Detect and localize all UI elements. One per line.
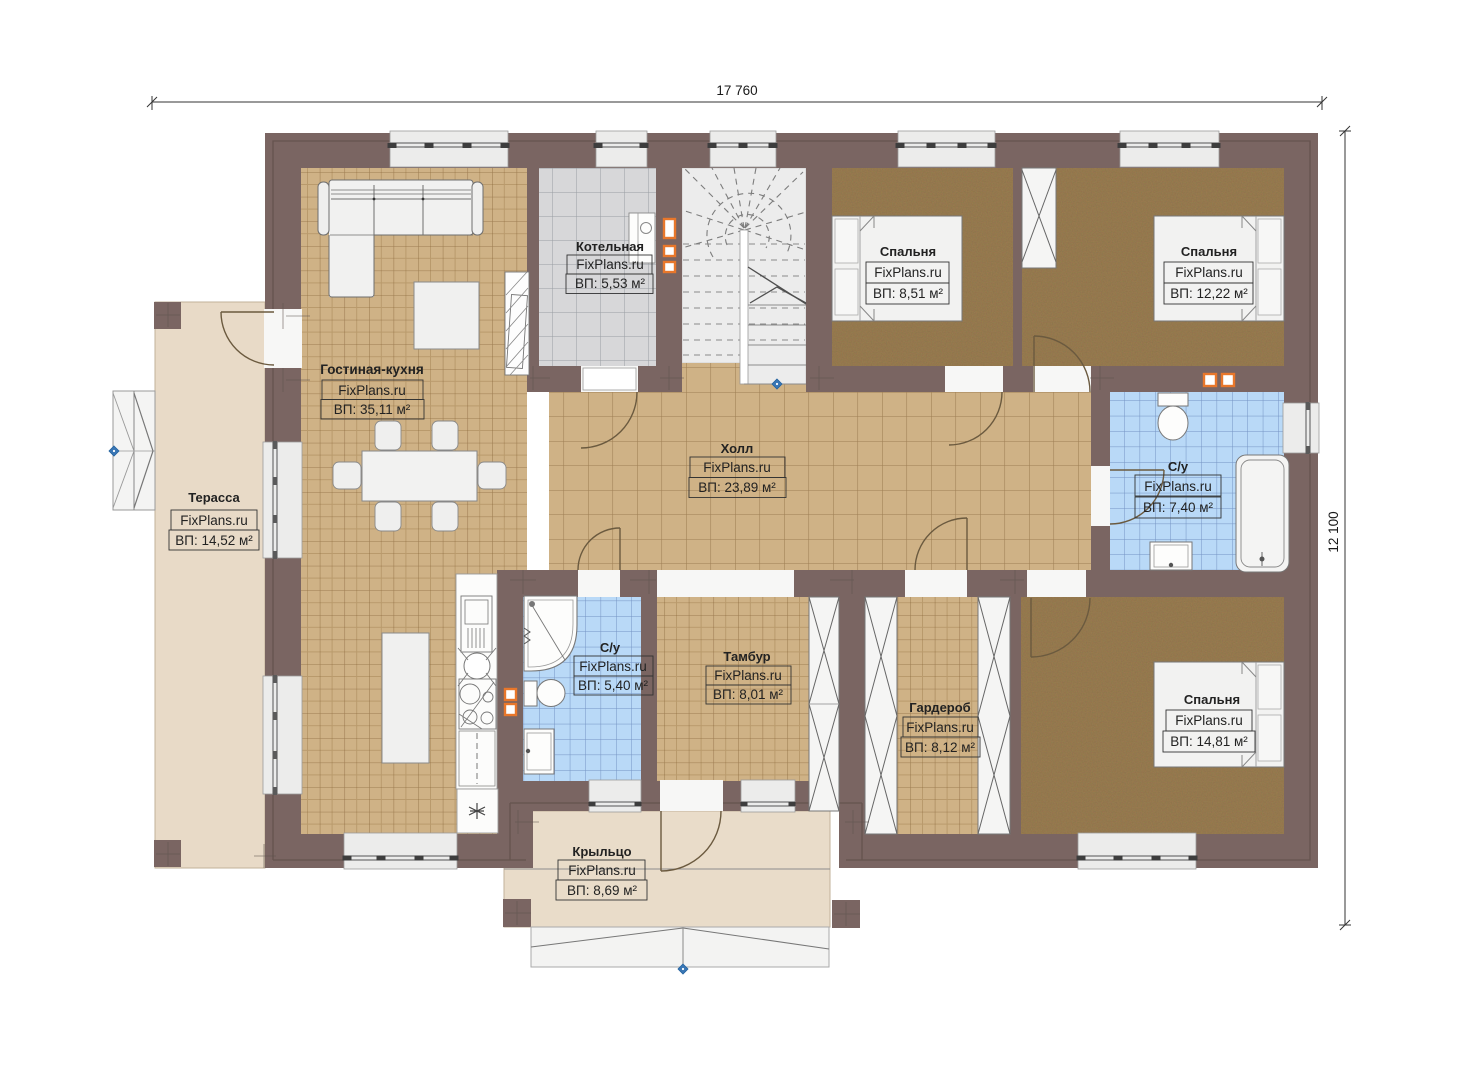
svg-text:Спальня: Спальня — [1184, 692, 1240, 707]
svg-text:ВП: 14,81 м²: ВП: 14,81 м² — [1170, 734, 1248, 749]
svg-text:С/у: С/у — [1168, 459, 1189, 474]
svg-text:ВП: 5,40 м²: ВП: 5,40 м² — [578, 678, 649, 693]
svg-text:FixPlans.ru: FixPlans.ru — [568, 863, 636, 878]
svg-text:ВП: 8,12 м²: ВП: 8,12 м² — [905, 740, 976, 755]
svg-text:FixPlans.ru: FixPlans.ru — [1175, 265, 1243, 280]
svg-text:Тамбур: Тамбур — [723, 649, 770, 664]
svg-text:FixPlans.ru: FixPlans.ru — [703, 460, 771, 475]
svg-text:FixPlans.ru: FixPlans.ru — [714, 668, 782, 683]
svg-text:Холл: Холл — [721, 441, 754, 456]
svg-text:Спальня: Спальня — [1181, 244, 1237, 259]
svg-text:Гостиная-кухня: Гостиная-кухня — [320, 362, 423, 377]
svg-text:ВП: 35,11 м²: ВП: 35,11 м² — [334, 402, 411, 417]
svg-text:FixPlans.ru: FixPlans.ru — [576, 257, 644, 272]
svg-text:12 100: 12 100 — [1326, 511, 1341, 552]
svg-text:ВП: 5,53 м²: ВП: 5,53 м² — [575, 276, 646, 291]
svg-text:ВП: 8,69 м²: ВП: 8,69 м² — [567, 883, 638, 898]
svg-text:ВП: 14,52 м²: ВП: 14,52 м² — [175, 533, 253, 548]
svg-text:FixPlans.ru: FixPlans.ru — [906, 720, 974, 735]
svg-text:FixPlans.ru: FixPlans.ru — [579, 659, 647, 674]
svg-text:Терасса: Терасса — [188, 490, 240, 505]
svg-text:ВП: 12,22 м²: ВП: 12,22 м² — [1170, 286, 1248, 301]
svg-text:ВП: 8,01 м²: ВП: 8,01 м² — [713, 687, 784, 702]
svg-text:Спальня: Спальня — [880, 244, 936, 259]
svg-text:FixPlans.ru: FixPlans.ru — [1175, 713, 1243, 728]
svg-text:FixPlans.ru: FixPlans.ru — [338, 383, 406, 398]
svg-text:FixPlans.ru: FixPlans.ru — [180, 513, 248, 528]
svg-text:ВП: 7,40 м²: ВП: 7,40 м² — [1143, 500, 1214, 515]
svg-text:ВП: 8,51 м²: ВП: 8,51 м² — [873, 286, 944, 301]
svg-text:FixPlans.ru: FixPlans.ru — [1144, 479, 1212, 494]
svg-text:Гардероб: Гардероб — [909, 700, 970, 715]
svg-text:ВП: 23,89 м²: ВП: 23,89 м² — [698, 480, 776, 495]
svg-text:Котельная: Котельная — [576, 239, 644, 254]
svg-text:17 760: 17 760 — [716, 83, 757, 98]
svg-text:FixPlans.ru: FixPlans.ru — [874, 265, 942, 280]
svg-text:С/у: С/у — [600, 640, 621, 655]
svg-text:Крыльцо: Крыльцо — [572, 844, 631, 859]
